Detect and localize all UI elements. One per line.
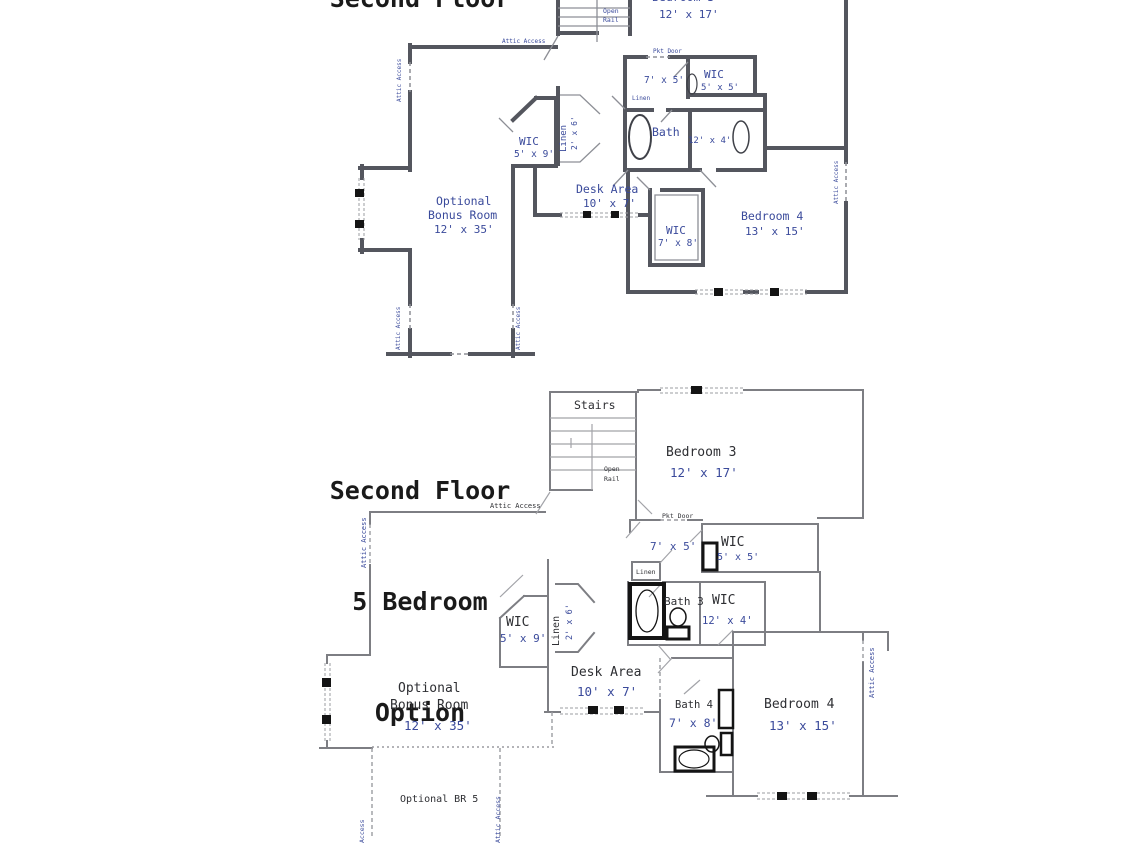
linen-label: Linen — [636, 569, 656, 576]
bath-label: Bath — [652, 126, 680, 139]
stairs-label: Stairs — [574, 399, 616, 412]
bedroom4-label: Bedroom 4 — [764, 698, 834, 713]
bedroom4-dim: 13' x 15' — [745, 226, 805, 238]
toilet-icon — [705, 736, 719, 752]
pkt-door-label: Pkt Door — [653, 49, 682, 56]
open-rail-label: Open — [603, 8, 619, 15]
wic-label: WIC — [506, 616, 529, 631]
closet-door-icon — [733, 121, 749, 153]
bath4-dim: 7' x 8' — [669, 717, 717, 730]
wic-dim: 5' x 5' — [717, 552, 759, 563]
wic-label: WIC — [666, 225, 686, 237]
desk-area-dim: 10' x 7' — [583, 198, 636, 210]
attic-access-label: Attic Access — [361, 517, 369, 568]
bonus-room-dim: 12' x 35' — [404, 719, 472, 733]
bath3-label: Bath 3 — [664, 596, 704, 608]
wic-dim: 5' x 9' — [514, 150, 554, 161]
wic-label: WIC — [721, 536, 744, 551]
bonus-room-dim: 12' x 35' — [434, 224, 494, 236]
attic-access-label: Attic Access — [397, 59, 404, 102]
top-plan-walls — [360, 0, 846, 356]
attic-access-label: Attic Access — [834, 161, 841, 204]
bonus-room-label: Bonus Room — [390, 699, 468, 714]
attic-access-label: Attic Access — [490, 503, 541, 511]
open-rail-label: Rail — [603, 17, 619, 24]
wic-dim: 5' x 5' — [701, 83, 739, 93]
bonus-room-label: Bonus Room — [428, 209, 497, 222]
attic-access-label: Attic Access — [495, 796, 502, 843]
wic-label: WIC — [519, 136, 539, 148]
toilet-icon — [670, 608, 686, 626]
bedroom3-dim: 12' x 17' — [659, 9, 719, 21]
bedroom4-label: Bedroom 4 — [741, 210, 803, 223]
hall-dim: 7' x 5' — [650, 541, 696, 553]
attic-access-label: Attic Access — [396, 307, 403, 350]
bath4-label: Bath 4 — [675, 700, 713, 712]
linen-closet-dim: 2' x 6' — [566, 604, 576, 640]
desk-area-label: Desk Area — [576, 183, 638, 196]
open-rail-label: Rail — [604, 476, 620, 483]
closet-dim: 12' x 4' — [688, 136, 731, 146]
bedroom3-dim: 12' x 17' — [670, 466, 738, 480]
linen-closet-label: Linen — [551, 616, 562, 646]
bedroom3-label: Bedroom 3 — [652, 0, 714, 4]
pkt-door-label: Pkt Door — [662, 513, 693, 520]
floorplan-page: Second Floor Bedroom 3 12' x 17' Open Ra… — [0, 0, 1125, 844]
wic-dim: 12' x 4' — [702, 616, 753, 628]
attic-access-label: Attic Access — [516, 307, 523, 350]
sink-icon — [719, 690, 733, 728]
attic-access-label: Attic Access — [502, 39, 545, 46]
wic-label: WIC — [712, 594, 735, 609]
bonus-room-label: Optional — [436, 195, 491, 208]
bedroom3-label: Bedroom 3 — [666, 446, 736, 461]
wic-dim: 5' x 9' — [500, 633, 546, 645]
shelf-icon — [703, 543, 717, 570]
wic-dim: 7' x 8' — [658, 239, 698, 250]
attic-access-label: Attic Access — [869, 647, 877, 698]
access-label: Access — [359, 820, 366, 843]
bathtub-icon — [629, 115, 651, 159]
bathtub-icon — [630, 584, 664, 638]
linen-closet-label: Linen — [559, 125, 569, 152]
open-rail-label: Open — [604, 466, 620, 473]
optional-br5-label: Optional BR 5 — [400, 794, 478, 805]
wic-label: WIC — [704, 69, 724, 81]
bonus-room-label: Optional — [398, 682, 461, 697]
top-plan-title: Second Floor — [290, 0, 550, 13]
hall-dim: 7' x 5' — [644, 76, 684, 87]
linen-closet-dim: 2' x 6' — [571, 116, 580, 150]
desk-area-label: Desk Area — [571, 666, 641, 681]
bedroom4-dim: 13' x 15' — [769, 719, 837, 733]
linen-label: Linen — [632, 96, 650, 103]
desk-area-dim: 10' x 7' — [577, 685, 637, 699]
